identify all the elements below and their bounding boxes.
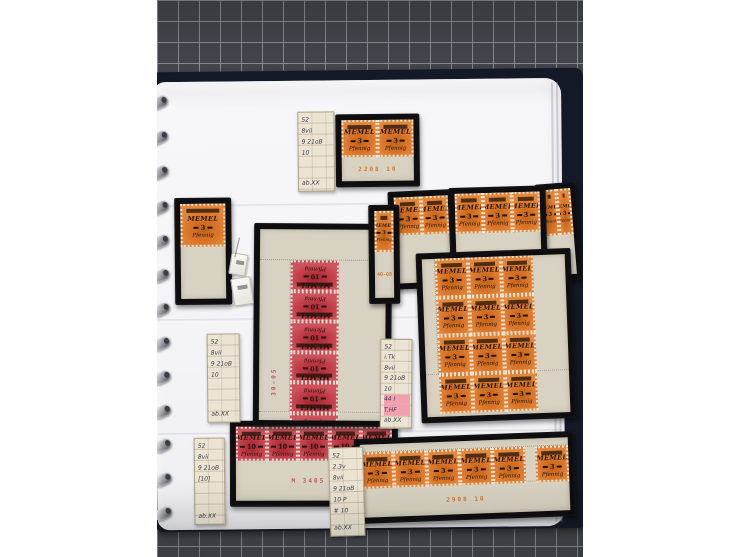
overprint-currency: Pfennig xyxy=(507,282,529,289)
overprint-value-row: 3 xyxy=(511,351,530,360)
overprint-value: 10 xyxy=(310,333,319,341)
overprint-bar xyxy=(447,395,452,397)
overprint-country: MEMEL xyxy=(236,433,267,441)
overprint-bar xyxy=(400,140,405,142)
overprint-bar xyxy=(490,316,495,318)
overprint-value-row: 10 xyxy=(271,442,294,450)
overprint-country: MEMEL xyxy=(504,341,535,350)
overprint-bar xyxy=(543,465,548,467)
overprint-bar xyxy=(399,218,404,220)
overprint-bar xyxy=(556,465,561,467)
stamp-overprint: MEMEL3Pfennig xyxy=(394,458,426,483)
overprint-value: 3 xyxy=(518,351,523,359)
sheet-bottom-margin xyxy=(181,246,227,299)
sheet-row: MEMEL3PfennigMEMEL3PfennigMEMEL3PfennigM… xyxy=(360,445,569,487)
overprint-bar xyxy=(443,279,448,281)
overprint-value-row: 10 xyxy=(303,333,326,341)
note-line: 9 21oB xyxy=(198,463,223,474)
overprint-value-row: 3 xyxy=(543,462,562,471)
overprint-currency: Pfennig xyxy=(477,361,499,368)
overprint-value: 3 xyxy=(516,312,521,320)
stamp-orange-3pfennig: MEMEL3Pfennig xyxy=(180,204,225,247)
stamp-red-10pfennig: MEMEL10Pfennig xyxy=(290,413,338,421)
overprint-bar xyxy=(481,468,486,470)
stamp-overprint: MEMEL10Pfennig xyxy=(267,433,298,457)
note-line: 10 xyxy=(302,147,333,158)
overprint-value-row: 3 xyxy=(368,468,387,477)
overprint-value: 3 xyxy=(441,466,446,474)
overprint-currency: Pfennig xyxy=(400,476,422,483)
overprint-value: 10 xyxy=(309,395,318,403)
stamp-orange-3pfennig: MEMEL3Pfennig xyxy=(535,445,569,482)
overprint-currency: Pfennig xyxy=(398,223,420,230)
overprint-currency: Pfennig xyxy=(499,472,521,479)
stamp-orange-3pfennig: MEMEL3Pfennig xyxy=(500,255,534,295)
overprint-value-row: 3 xyxy=(401,467,420,476)
overprint-value-row: 3 xyxy=(488,211,507,220)
album: MEMEL3PfennigMEMEL3Pfennig2208 10MEMEL3P… xyxy=(157,0,583,557)
overprint-currency: Pfennig xyxy=(433,475,455,482)
stamp-orange-3pfennig: MEMEL3Pfennig xyxy=(511,191,540,232)
stamp-overprint: MEMEL3Pfennig xyxy=(439,344,471,369)
overprint-bar xyxy=(320,398,325,400)
overprint-bar xyxy=(240,445,245,447)
overprint-value-row: 3 xyxy=(512,389,531,398)
overprint-currency: Pfennig xyxy=(304,326,325,332)
overprint-country: MEMEL xyxy=(470,304,501,313)
stamp-overprint: MEMEL3Pfennig xyxy=(440,382,472,407)
margin-number: 2908 10 xyxy=(446,495,486,503)
overprint-country: MEMEL xyxy=(437,305,468,314)
stamp-orange-3pfennig: MEMEL3Pfennig xyxy=(470,334,504,374)
stamp-overprint: MEMEL3Pfennig xyxy=(493,454,525,479)
stamp-overprint: MEMEL3Pfennig xyxy=(361,459,393,484)
overprint-bar xyxy=(522,276,527,278)
stamp-overprint: MEMEL3Pfennig xyxy=(437,305,469,330)
overprint-bar xyxy=(460,215,465,217)
overprint-bar xyxy=(489,278,494,280)
collector-note-note-mid-left: 528vii9 21oB10ab.XX xyxy=(207,333,241,422)
stamp-orange-3pfennig: MEMEL3Pfennig xyxy=(435,258,469,298)
photo-of-stamp-album: MEMEL3PfennigMEMEL3Pfennig2208 10MEMEL3P… xyxy=(157,0,583,557)
overprint-country: MEMEL xyxy=(299,281,330,289)
overprint-currency: Pfennig xyxy=(303,388,324,394)
stamp-overprint: MEMEL3Pfennig xyxy=(460,456,492,481)
overprint-bar xyxy=(556,212,561,214)
stamp-red-10pfennig: MEMEL10Pfennig xyxy=(290,352,338,383)
note-line: 9 21oB xyxy=(302,136,333,147)
overprint-currency: Pfennig xyxy=(385,146,406,152)
overprint-bar xyxy=(412,217,417,219)
overprint-bar xyxy=(386,140,391,142)
overprint-currency: Pfennig xyxy=(515,219,537,226)
overprint-currency: Pfennig xyxy=(459,221,481,228)
overprint-value: 3 xyxy=(484,313,489,321)
overprint-value-row: 3 xyxy=(500,464,519,473)
overprint-bar xyxy=(271,445,276,447)
overprint-bar xyxy=(512,393,517,395)
overprint-currency: Pfennig xyxy=(446,401,468,408)
sheet-row: 30-05MEMEL10PfennigMEMEL10PfennigMEMEL10… xyxy=(259,260,386,412)
overprint-value-row: 3 xyxy=(443,276,462,285)
price-tag xyxy=(228,252,248,276)
overprint-bar xyxy=(303,367,308,369)
overprint-currency: Pfennig xyxy=(510,360,532,367)
stamp-overprint: MEMEL10Pfennig xyxy=(236,433,267,457)
stamp-overprint: MEMEL10Pfennig xyxy=(299,357,330,381)
margin-number: 40-08 xyxy=(377,272,392,278)
overprint-country: MEMEL xyxy=(506,380,537,389)
stamp-grid: MEMEL3PfennigMEMEL3PfennigMEMEL3PfennigM… xyxy=(435,254,569,374)
overprint-bar xyxy=(434,469,439,471)
overprint-bar xyxy=(303,275,308,277)
sheet-top-margin xyxy=(260,229,386,261)
note-line: 9 21oB xyxy=(211,358,238,369)
overprint-bar xyxy=(388,232,393,234)
overprint-country: MEMEL xyxy=(440,382,471,391)
note-line: 8vii xyxy=(333,472,362,484)
overprint-currency: Pfennig xyxy=(443,323,465,330)
overprint-bar xyxy=(492,355,497,357)
overprint-bar xyxy=(303,336,308,338)
overprint-bar xyxy=(302,445,307,447)
overprint-country: MEMEL xyxy=(455,203,484,212)
stamp-overprint: MEMEL3Pfennig xyxy=(473,381,505,406)
overprint-value: 3 xyxy=(474,465,479,473)
overprint-bar xyxy=(321,306,326,308)
stamp-mount-pair-top: MEMEL3PfennigMEMEL3Pfennig2208 10 xyxy=(335,113,420,187)
stamp-overprint: MEMEL3Pfennig xyxy=(503,303,535,328)
overprint-bar xyxy=(444,318,449,320)
overprint-country: MEMEL xyxy=(298,433,329,441)
overprint-bar xyxy=(456,279,461,281)
overprint-bar xyxy=(475,278,480,280)
stamp-grid: MEMEL3PfennigMEMEL3PfennigMEMEL3PfennigM… xyxy=(360,445,569,487)
overprint-bar xyxy=(445,357,450,359)
overprint-bar xyxy=(321,336,326,338)
overprint-value: 3 xyxy=(454,392,459,400)
stamp-overprint: MEMEL3Pfennig xyxy=(436,267,468,292)
stamp-overprint: MEMEL3Pfennig xyxy=(470,304,502,329)
note-line: i.Tk xyxy=(384,352,410,363)
overprint-bar xyxy=(439,216,444,218)
overprint-value: 3 xyxy=(452,353,457,361)
stamp-orange-3pfennig: MEMEL3Pfennig xyxy=(393,450,427,487)
sheet-bottom-margin: 40-08 xyxy=(375,251,394,298)
note-line: 9 21oB xyxy=(333,483,362,495)
overprint-bar xyxy=(401,471,406,473)
note-line: 9 21oB xyxy=(384,373,410,384)
overprint-country: MEMEL xyxy=(503,303,534,312)
overprint-bar xyxy=(460,395,465,397)
overprint-country: MEMEL xyxy=(299,373,330,381)
note-line: 52 xyxy=(211,336,238,347)
note-line: 52 xyxy=(198,441,223,452)
overprint-bar xyxy=(526,392,531,394)
overprint-value: 3 xyxy=(519,390,524,398)
overprint-bar xyxy=(502,214,507,216)
overprint-value-row: 3 xyxy=(556,209,574,216)
stamp-mount-strip6-bottom: MEMEL3PfennigMEMEL3PfennigMEMEL3PfennigM… xyxy=(354,431,577,524)
overprint-country: MEMEL xyxy=(299,312,330,320)
stamp-orange-3pfennig: MEMEL3Pfennig xyxy=(455,193,484,234)
overprint-value: 10 xyxy=(309,442,318,450)
stamp-overprint: MEMEL10Pfennig xyxy=(299,265,330,289)
overprint-currency: Pfennig xyxy=(542,471,564,478)
note-line: ab.XX xyxy=(198,511,223,522)
overprint-currency: Pfennig xyxy=(478,399,500,406)
overprint-bar xyxy=(194,227,199,229)
overprint-value: 3 xyxy=(408,467,413,475)
overprint-country: MEMEL xyxy=(427,457,458,466)
stamp-orange-3pfennig: MEMEL3Pfennig xyxy=(374,211,393,252)
stamp-orange-3pfennig: MEMEL3Pfennig xyxy=(492,447,526,484)
margin-number-vertical: 30-05 xyxy=(270,368,277,396)
stamp-overprint: MEMEL3Pfennig xyxy=(472,343,504,368)
overprint-currency: Pfennig xyxy=(304,296,325,302)
stamp-grid: MEMEL3Pfennig xyxy=(374,211,393,251)
stamp-overprint: MEMEL10Pfennig xyxy=(299,296,330,320)
stamp-mount-narrow-single: MEMEL3Pfennig40-08 xyxy=(368,205,400,304)
note-line: 10 P xyxy=(333,494,362,506)
stamp-overprint: MEMEL3Pfennig xyxy=(455,203,484,228)
stamp-overprint: MEMEL10Pfennig xyxy=(299,326,330,350)
stamp-orange-3pfennig: MEMEL3Pfennig xyxy=(472,372,506,412)
note-line: 52 xyxy=(384,342,410,353)
stamp-orange-3pfennig: MEMEL3Pfennig xyxy=(426,449,460,486)
overprint-value: 3 xyxy=(486,391,491,399)
sheet-row: MEMEL3PfennigMEMEL3PfennigMEMEL3Pfennig xyxy=(455,191,541,232)
overprint-bar xyxy=(320,445,325,447)
stamp-red-10pfennig: MEMEL10Pfennig xyxy=(291,260,339,291)
overprint-bar xyxy=(364,140,369,142)
note-line: T.HF xyxy=(384,405,410,416)
overprint-value: 10 xyxy=(310,303,319,311)
sheet-left-margin: 30-05 xyxy=(259,260,291,411)
stamp-overprint: MEMEL3Pfennig xyxy=(187,215,218,239)
overprint-bar xyxy=(303,306,308,308)
overprint-bar xyxy=(368,472,373,474)
sheet-row: MEMEL3PfennigMEMEL3Pfennig xyxy=(341,120,413,157)
overprint-value: 3 xyxy=(382,230,386,236)
stamp-orange-3pfennig: MEMEL3Pfennig xyxy=(459,448,493,485)
stamp-overprint: MEMEL3Pfennig xyxy=(469,265,501,290)
sheet-row: MEMEL3PfennigMEMEL3Pfennig xyxy=(394,195,450,234)
overprint-bar xyxy=(458,317,463,319)
note-line: 8vii xyxy=(384,363,410,374)
stamp-grid: MEMEL3PfennigMEMEL3PfennigMEMEL3Pfennig xyxy=(455,191,541,232)
stamp-overprint: MEMEL3Pfennig xyxy=(380,128,411,152)
stamp-orange-3pfennig: MEMEL3Pfennig xyxy=(421,195,450,234)
overprint-value-row: 3 xyxy=(375,230,393,236)
stamp-overprint: MEMEL3Pfennig xyxy=(483,202,512,227)
stamp-red-10pfennig: MEMEL10Pfennig xyxy=(298,427,329,461)
note-line: [10] xyxy=(198,474,223,485)
overprint-value: 3 xyxy=(550,462,555,470)
overprint-country: MEMEL xyxy=(394,458,425,467)
overprint-bar xyxy=(478,355,483,357)
overprint-bar xyxy=(382,471,387,473)
note-line: 2.3v xyxy=(332,461,361,473)
overprint-value-row: 3 xyxy=(426,213,445,222)
overprint-bar xyxy=(321,367,326,369)
overprint-country: MEMEL xyxy=(472,343,503,352)
stamp-overprint: MEMEL3Pfennig xyxy=(504,341,536,366)
overprint-bar xyxy=(350,140,355,142)
overprint-value: 10 xyxy=(310,364,319,372)
overprint-value-row: 10 xyxy=(240,442,263,450)
overprint-value: 3 xyxy=(451,315,456,323)
overprint-bar xyxy=(523,315,528,317)
overprint-country: MEMEL xyxy=(473,381,504,390)
stamp-orange-3pfennig: MEMEL3Pfennig xyxy=(467,256,501,296)
stamp-orange-3pfennig: MEMEL3Pfennig xyxy=(503,333,537,373)
overprint-value-row: 3 xyxy=(444,314,463,323)
overprint-bar xyxy=(474,215,479,217)
stamp-mount-block12-orange: MEMEL3PfennigMEMEL3PfennigMEMEL3PfennigM… xyxy=(416,248,577,424)
stamp-red-10pfennig: MEMEL10Pfennig xyxy=(290,383,338,414)
overprint-value-row: 3 xyxy=(434,466,453,475)
overprint-value-row: 3 xyxy=(350,137,369,145)
stamp-overprint: MEMEL3Pfennig xyxy=(421,204,450,229)
overprint-country: MEMEL xyxy=(439,344,470,353)
overprint-value: 3 xyxy=(563,210,567,216)
stamp-orange-3pfennig: MEMEL3Pfennig xyxy=(469,295,503,335)
overprint-country: MEMEL xyxy=(380,128,411,136)
stamp-red-10pfennig: MEMEL10Pfennig xyxy=(236,427,267,461)
stamp-orange-3pfennig: MEMEL3Pfennig xyxy=(556,188,574,235)
overprint-currency: Pfennig xyxy=(304,265,325,271)
collector-note-note-bottom-mid: 522.3v8vii9 21oB10 P# 10ab.XX xyxy=(328,447,365,537)
overprint-currency: Pfennig xyxy=(476,322,498,329)
stamp-orange-3pfennig: MEMEL3Pfennig xyxy=(502,294,536,334)
stamp-orange-3pfennig: MEMEL3Pfennig xyxy=(360,452,394,489)
overprint-value-row: 3 xyxy=(386,137,405,145)
overprint-country: MEMEL xyxy=(299,342,330,350)
overprint-currency: Pfennig xyxy=(367,477,389,484)
overprint-currency: Pfennig xyxy=(303,451,324,457)
sheet-block12-orange: MEMEL3PfennigMEMEL3PfennigMEMEL3PfennigM… xyxy=(422,254,571,417)
overprint-bar xyxy=(513,467,518,469)
stamp-grid: MEMEL3Pfennig xyxy=(180,204,225,246)
stamp-overprint: MEMEL3Pfennig xyxy=(556,203,574,223)
stamp-overprint: MEMEL3Pfennig xyxy=(501,264,533,289)
collector-note-note-bottom-left: 528vii9 21oB[10]ab.XX xyxy=(194,438,226,525)
note-line: ab.XX xyxy=(334,522,363,534)
note-line: 8vii xyxy=(301,125,332,136)
overprint-currency: Pfennig xyxy=(376,237,392,242)
overprint-country: MEMEL xyxy=(511,201,540,210)
overprint-value-row: 3 xyxy=(467,465,486,474)
overprint-currency: Pfennig xyxy=(474,283,496,290)
overprint-value-row: 3 xyxy=(508,273,527,282)
overprint-value: 3 xyxy=(450,276,455,284)
stamp-overprint: MEMEL3Pfennig xyxy=(511,201,540,226)
overprint-bar xyxy=(524,354,529,356)
overprint-currency: Pfennig xyxy=(466,474,488,481)
overprint-bar xyxy=(511,354,516,356)
overprint-bar xyxy=(530,213,535,215)
note-line: 8vii xyxy=(211,347,238,358)
overprint-bar xyxy=(426,217,431,219)
sheet-narrow-single: MEMEL3Pfennig40-08 xyxy=(374,211,394,298)
overprint-value: 10 xyxy=(278,442,287,450)
overprint-bar xyxy=(302,398,307,400)
overprint-value-row: 10 xyxy=(303,364,326,372)
overprint-value-row: 3 xyxy=(399,214,418,223)
overprint-currency: Pfennig xyxy=(192,233,213,239)
stamp-overprint: MEMEL3Pfennig xyxy=(374,224,393,242)
sheet-single-left: MEMEL3Pfennig xyxy=(180,204,226,299)
stamp-red-10pfennig: MEMEL10Pfennig xyxy=(290,321,338,352)
overprint-value-row: 3 xyxy=(477,313,496,322)
overprint-value-row: 3 xyxy=(445,353,464,362)
overprint-value-row: 10 xyxy=(303,303,326,311)
overprint-bar xyxy=(488,214,493,216)
overprint-value: 3 xyxy=(548,211,552,217)
margin-number: 2208 10 xyxy=(358,165,397,172)
overprint-value: 3 xyxy=(406,214,411,222)
sheet-red-block-10: 30-05MEMEL10PfennigMEMEL10PfennigMEMEL10… xyxy=(259,229,386,421)
overprint-value-row: 3 xyxy=(517,210,536,219)
overprint-currency: Pfennig xyxy=(444,362,466,369)
overprint-bar xyxy=(508,277,513,279)
sheet-pair-top: MEMEL3PfennigMEMEL3Pfennig2208 10 xyxy=(341,120,414,182)
overprint-value: 3 xyxy=(507,464,512,472)
overprint-currency: Pfennig xyxy=(511,398,533,405)
overprint-bar xyxy=(207,227,212,229)
overprint-currency: Pfennig xyxy=(349,146,370,152)
overprint-country: MEMEL xyxy=(460,456,491,465)
stamp-overprint: MEMEL10Pfennig xyxy=(298,418,329,421)
note-line: 8vii xyxy=(198,452,223,463)
note-line: 10 xyxy=(384,384,410,395)
overprint-country: MEMEL xyxy=(298,404,329,412)
collector-note-note-top: 528vii9 21oB10ab.XX xyxy=(297,111,335,191)
note-line: ab.XX xyxy=(211,408,238,419)
overprint-value: 10 xyxy=(247,442,256,450)
note-line: ab.XX xyxy=(302,177,333,188)
overprint-bar xyxy=(289,445,294,447)
sheet-bottom-margin: 2208 10 xyxy=(342,156,414,182)
collector-note-note-mid-right: 52i.Tk8vii9 21oB1044 IT.HFab.XX xyxy=(380,339,413,429)
overprint-bar xyxy=(517,213,522,215)
overprint-bar xyxy=(477,317,482,319)
overprint-value-row: 10 xyxy=(302,395,325,403)
stamp-overprint: MEMEL3Pfennig xyxy=(506,380,538,405)
overprint-bar xyxy=(480,394,485,396)
overprint-bar xyxy=(493,393,498,395)
overprint-country: MEMEL xyxy=(483,202,512,211)
overprint-country: MEMEL xyxy=(344,128,375,136)
overprint-currency: Pfennig xyxy=(425,222,447,229)
overprint-value: 3 xyxy=(201,224,206,232)
overprint-value: 3 xyxy=(375,469,380,477)
overprint-value-row: 10 xyxy=(303,272,326,280)
stamp-orange-3pfennig: MEMEL3Pfennig xyxy=(483,192,512,233)
note-line: 52 xyxy=(332,450,361,462)
stamp-overprint: MEMEL3Pfennig xyxy=(536,453,568,478)
note-line: ab.XX xyxy=(384,415,410,426)
sheet-row: MEMEL3Pfennig xyxy=(374,211,393,251)
overprint-bar xyxy=(509,315,514,317)
overprint-country: MEMEL xyxy=(556,203,574,210)
overprint-value-row: 3 xyxy=(509,312,528,321)
overprint-country: MEMEL xyxy=(436,267,467,276)
stamp-overprint: MEMEL10Pfennig xyxy=(298,433,329,457)
overprint-country: MEMEL xyxy=(267,433,298,441)
stamp-orange-3pfennig: MEMEL3Pfennig xyxy=(439,374,473,414)
